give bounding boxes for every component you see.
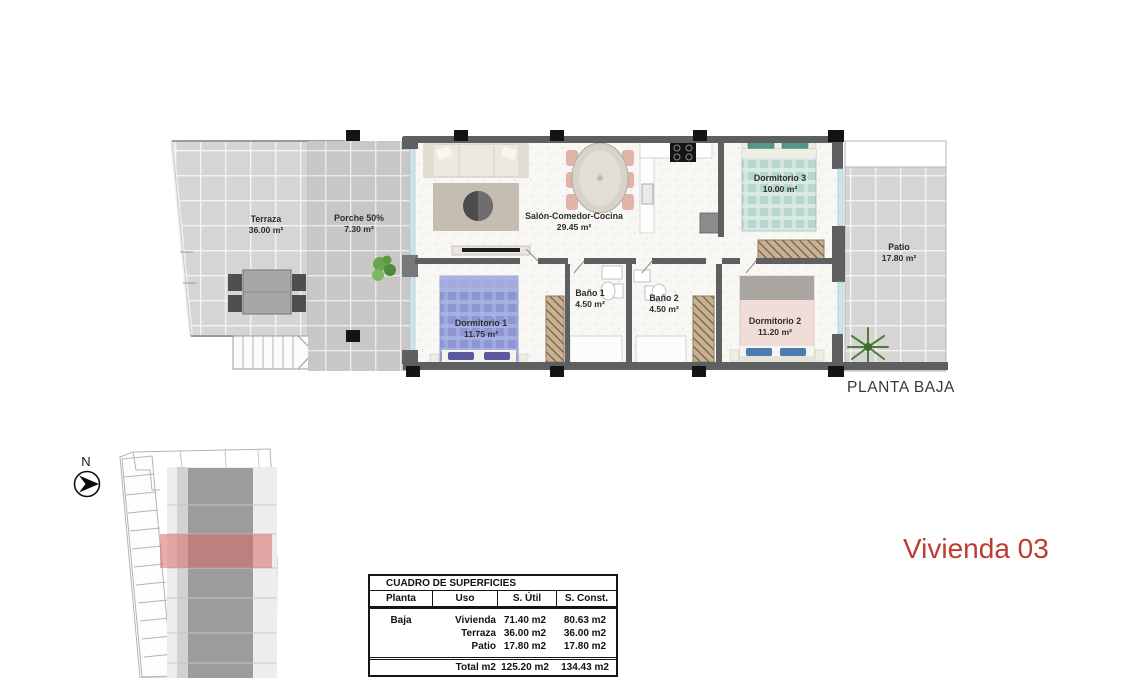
shower-tray-1 (570, 336, 622, 363)
cell-util: 17.80 m2 (496, 640, 554, 653)
patio-area: Patio 17.80 m² (845, 141, 946, 371)
header-planta: Planta (370, 591, 433, 606)
cooktop (670, 142, 696, 162)
cell-uso: Patio (432, 640, 496, 653)
surfaces-table: CUADRO DE SUPERFICIES Planta Uso S. Útil… (368, 574, 618, 677)
site-plan-highlighted-unit (160, 534, 272, 568)
room-label-patio: Patio (888, 242, 910, 252)
wardrobe-right (693, 296, 714, 362)
room-label-dormitorio1: Dormitorio 1 (455, 318, 507, 328)
room-label-terraza: Terraza (251, 214, 282, 224)
room-area-bano2: 4.50 m² (649, 304, 679, 314)
cell-util: 71.40 m2 (496, 614, 554, 627)
site-plan-building (160, 449, 277, 678)
sink-bath1 (602, 266, 622, 279)
cell-const: 36.00 m2 (554, 627, 616, 640)
table-row: Terraza 36.00 m2 36.00 m2 (370, 627, 616, 640)
header-s-const: S. Const. (557, 591, 616, 606)
room-area-bano1: 4.50 m² (575, 299, 605, 309)
site-plan (120, 449, 277, 678)
room-area-dormitorio2: 11.20 m² (758, 327, 792, 337)
wardrobe-left (546, 296, 564, 362)
floor-plan: Terraza 36.00 m² Porche 50% 7.30 m² (172, 130, 948, 377)
table-row: Baja Vivienda 71.40 m2 80.63 m2 (370, 614, 616, 627)
total-const: 134.43 m2 (554, 662, 616, 673)
bedroom-1: Dormitorio 1 11.75 m² (430, 276, 528, 365)
bedroom-2: Dormitorio 2 11.20 m² (730, 276, 824, 362)
header-uso: Uso (433, 591, 498, 606)
cell-planta (370, 662, 432, 673)
table-row: Patio 17.80 m2 17.80 m2 (370, 640, 616, 653)
cell-uso: Vivienda (432, 614, 496, 627)
wardrobe-bedroom3 (758, 240, 824, 261)
page: Terraza 36.00 m² Porche 50% 7.30 m² (0, 0, 1125, 678)
room-area-terraza: 36.00 m² (249, 225, 284, 235)
cell-uso: Terraza (432, 627, 496, 640)
cell-planta (370, 627, 432, 640)
north-arrow-icon (79, 476, 99, 493)
room-area-dormitorio3: 10.00 m² (763, 184, 798, 194)
room-label-dormitorio3: Dormitorio 3 (754, 173, 806, 183)
surfaces-table-total-row: Total m2 125.20 m2 134.43 m2 (370, 657, 616, 675)
room-area-porche: 7.30 m² (344, 224, 374, 234)
surfaces-table-header: Planta Uso S. Útil S. Const. (370, 591, 616, 609)
room-area-dormitorio1: 11.75 m² (464, 329, 498, 339)
compass: N (75, 454, 100, 497)
cell-planta: Baja (370, 614, 432, 627)
surfaces-table-body: Baja Vivienda 71.40 m2 80.63 m2 Terraza … (370, 609, 616, 657)
stairs (233, 336, 315, 369)
surfaces-table-title: CUADRO DE SUPERFICIES (370, 576, 616, 591)
shower-tray-2 (636, 336, 686, 363)
sink-bath2 (634, 270, 650, 282)
room-label-bano1: Baño 1 (575, 288, 604, 298)
cell-const: 80.63 m2 (554, 614, 616, 627)
sink (642, 184, 653, 204)
total-label: Total m2 (432, 662, 496, 673)
room-area-salon: 29.45 m² (557, 222, 592, 232)
room-area-patio: 17.80 m² (882, 253, 917, 263)
total-util: 125.20 m2 (496, 662, 554, 673)
room-label-dormitorio2: Dormitorio 2 (749, 316, 801, 326)
cell-const: 17.80 m2 (554, 640, 616, 653)
dining-set (566, 143, 634, 213)
room-label-salon: Salón-Comedor-Cocina (525, 211, 623, 221)
compass-n-label: N (81, 454, 90, 469)
plan-title: PLANTA BAJA (815, 379, 955, 397)
header-s-util: S. Útil (498, 591, 557, 606)
unit-title: Vivienda 03 (903, 533, 1103, 565)
room-label-bano2: Baño 2 (649, 293, 678, 303)
room-label-porche: Porche 50% (334, 213, 384, 223)
porch-area: Porche 50% 7.30 m² (308, 141, 413, 371)
cell-util: 36.00 m2 (496, 627, 554, 640)
cell-planta (370, 640, 432, 653)
